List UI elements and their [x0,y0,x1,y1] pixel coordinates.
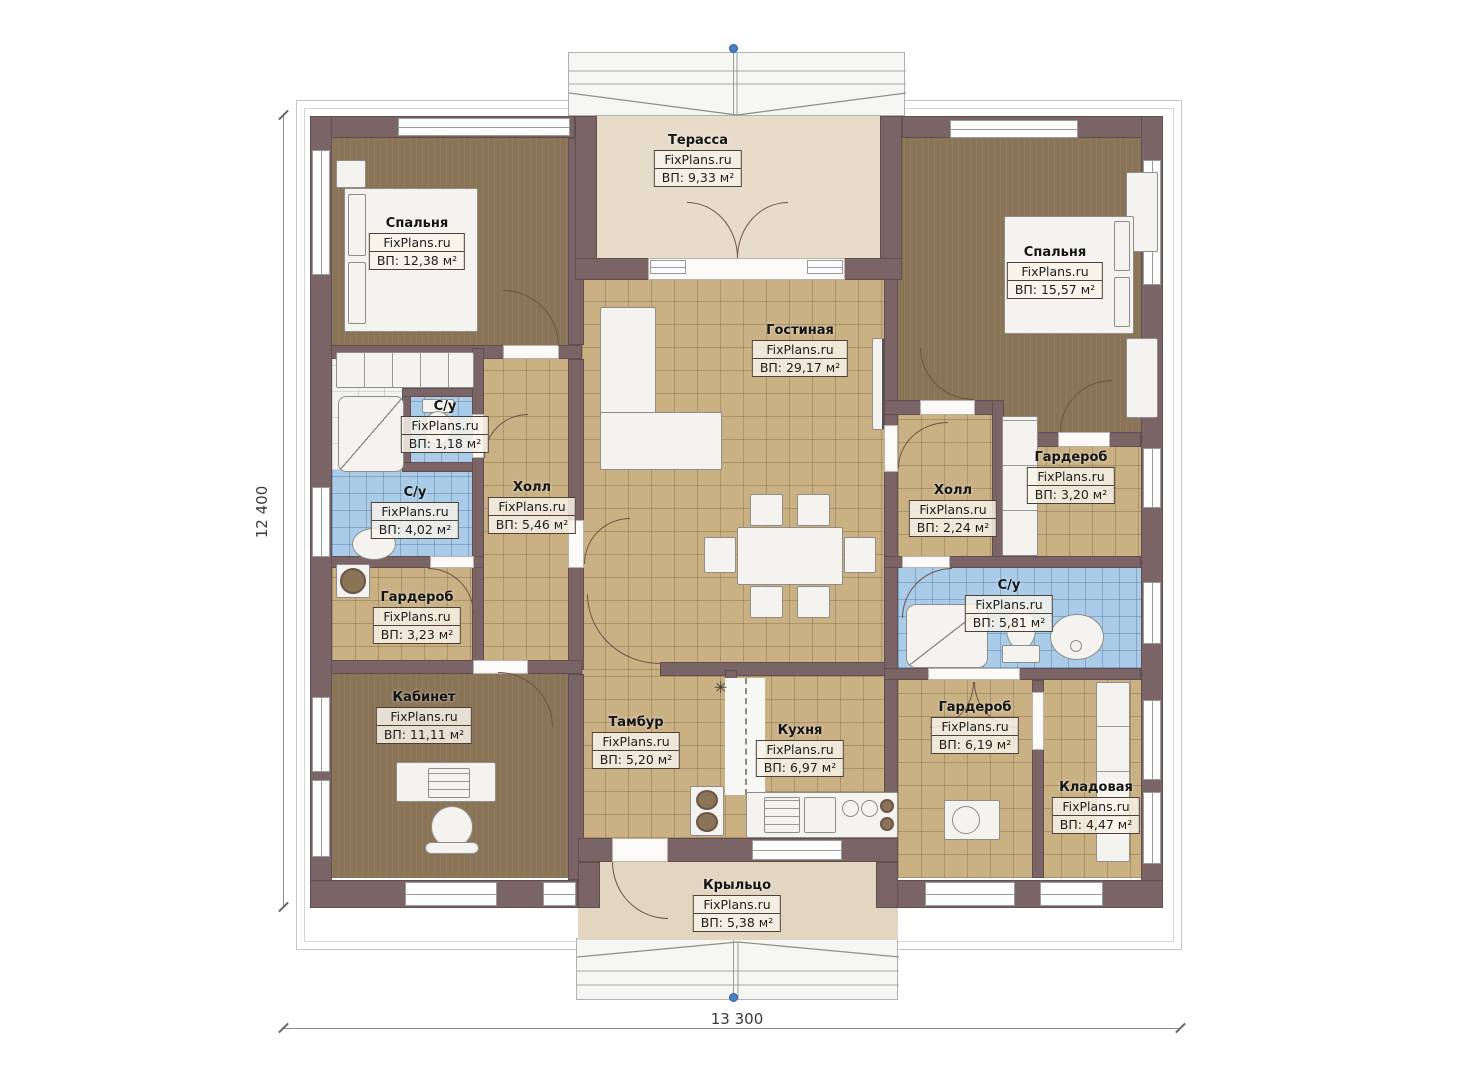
window-pantry-side-1 [1143,700,1161,780]
pantry-door-opening [1032,692,1044,750]
sink-right-drain [1070,640,1082,652]
dining-table [737,527,843,585]
room-name: Крыльцо [693,878,781,893]
room-name: Тамбур [592,715,680,730]
oven-knob-2 [696,812,718,832]
porch-roof [576,938,898,1000]
room-name: Кабинет [376,690,472,705]
room-info-box: FixPlans.ru ВП: 11,11 м² [376,707,472,744]
watermark-text: FixPlans.ru [966,596,1052,613]
window-pantry-side-2 [1143,792,1161,864]
pillow-right-2 [1114,277,1130,327]
wardrobe-right-door-opening [1058,432,1110,447]
room-name: Терасса [654,133,742,148]
terrace-roof [568,52,905,116]
room-info-box: FixPlans.ru ВП: 12,38 м² [369,233,465,270]
label-office: Кабинет FixPlans.ru ВП: 11,11 м² [376,690,472,744]
room-info-box: FixPlans.ru ВП: 6,19 м² [931,717,1019,754]
room-name: Спальня [1007,245,1103,260]
dimension-height-label: 12 400 [253,486,271,539]
window-wc-left-side [312,487,330,557]
room-name: Холл [488,480,576,495]
toilet-right-tank [1002,645,1040,663]
dimension-line-bottom [283,1028,1180,1029]
window-bedroom-left-top [398,118,570,136]
tv-panel [872,338,884,430]
room-area: ВП: 2,24 м² [910,518,996,536]
window-wardrobe-right-side [1143,448,1161,508]
terrace-door-panel-left [650,260,686,274]
watermark-text: FixPlans.ru [1008,263,1102,280]
chair-top-2 [797,494,830,526]
room-name: Гардероб [931,700,1019,715]
asterisk-symbol: ✳ [714,678,727,697]
room-area: ВП: 12,38 м² [370,251,464,269]
watermark-text: FixPlans.ru [1053,798,1139,815]
label-wc-left: С/у FixPlans.ru ВП: 4,02 м² [371,485,459,539]
room-info-box: FixPlans.ru ВП: 1,18 м² [401,416,489,453]
wall-living-kitchen [660,662,898,676]
stove-burner-2 [880,817,894,831]
room-name: С/у [371,485,459,500]
room-name: Кухня [756,723,844,738]
sofa-seat [600,412,722,470]
room-info-box: FixPlans.ru ВП: 9,33 м² [654,150,742,187]
label-bedroom-left: Спальня FixPlans.ru ВП: 12,38 м² [369,216,465,270]
label-pantry: Кладовая FixPlans.ru ВП: 4,47 м² [1052,780,1140,834]
watermark-text: FixPlans.ru [655,151,741,168]
window-office-bottom [405,882,497,906]
kitchen-dashed-line [745,678,747,795]
wall-office-top [310,660,582,674]
room-name: Холл [909,483,997,498]
dimension-line-left [283,116,284,908]
room-area: ВП: 3,23 м² [374,625,460,643]
label-wardrobe-left: Гардероб FixPlans.ru ВП: 3,23 м² [373,590,461,644]
handle-dot-top[interactable] [729,44,738,53]
room-name: Гардероб [373,590,461,605]
ridge-guide-top [733,48,734,116]
watermark-text: FixPlans.ru [374,608,460,625]
label-porch: Крыльцо FixPlans.ru ВП: 5,38 м² [693,878,781,932]
watermark-text: FixPlans.ru [694,896,780,913]
nightstand-left [336,160,366,188]
chair-top-1 [750,494,783,526]
washer-left-door [340,568,366,594]
label-wardrobe-bottom: Гардероб FixPlans.ru ВП: 6,19 м² [931,700,1019,754]
room-info-box: FixPlans.ru ВП: 29,17 м² [752,340,848,377]
room-area: ВП: 5,81 м² [966,613,1052,631]
window-bedroom-left-side [312,150,330,275]
label-hall-left: Холл FixPlans.ru ВП: 5,46 м² [488,480,576,534]
chair-left [704,537,736,573]
room-info-box: FixPlans.ru ВП: 3,23 м² [373,607,461,644]
room-area: ВП: 29,17 м² [753,358,847,376]
room-name: Гостиная [752,323,848,338]
wall-porch-stub-left [578,862,600,908]
living-hall-right-opening [884,425,898,472]
closet-bedroom-right-bottom [1126,338,1158,418]
sink-bowl-1 [842,800,859,817]
chair-bottom-2 [797,586,830,618]
room-info-box: FixPlans.ru ВП: 5,38 м² [693,895,781,932]
room-info-box: FixPlans.ru ВП: 4,02 м² [371,502,459,539]
pillow-left-1 [348,194,366,256]
room-area: ВП: 15,57 м² [1008,280,1102,298]
watermark-text: FixPlans.ru [757,741,843,758]
closet-bedroom-left [336,352,474,388]
label-hall-right: Холл FixPlans.ru ВП: 2,24 м² [909,483,997,537]
label-wardrobe-right: Гардероб FixPlans.ru ВП: 3,20 м² [1027,450,1115,504]
handle-dot-bottom[interactable] [729,993,738,1002]
room-name: Спальня [369,216,465,231]
room-name: С/у [965,578,1053,593]
wall-terrace-left [575,116,597,280]
label-terrace: Терасса FixPlans.ru ВП: 9,33 м² [654,133,742,187]
window-office-bottom-2 [543,882,576,906]
room-area: ВП: 5,46 м² [489,515,575,533]
watermark-text: FixPlans.ru [593,733,679,750]
stove-burner-1 [880,799,894,813]
desk-printer [428,768,470,798]
room-info-box: FixPlans.ru ВП: 5,81 м² [965,595,1053,632]
washer-bottom-door [952,806,980,834]
chair-bottom-1 [750,586,783,618]
terrace-door-panel-right [807,260,843,274]
label-tambour: Тамбур FixPlans.ru ВП: 5,20 м² [592,715,680,769]
room-name: Кладовая [1052,780,1140,795]
room-area: ВП: 11,11 м² [377,725,471,743]
pillow-left-2 [348,262,366,324]
room-area: ВП: 6,19 м² [932,735,1018,753]
chair-right [844,537,876,573]
wall-porch-stub-right [876,862,898,908]
room-area: ВП: 3,20 м² [1028,485,1114,503]
oven-knob-1 [696,790,718,810]
kitchen-cabinet [804,797,836,833]
floor-plan-canvas: ✳ Терасса [0,0,1474,1080]
wc-right-door-opening [902,556,950,568]
watermark-text: FixPlans.ru [370,234,464,251]
watermark-text: FixPlans.ru [932,718,1018,735]
dimension-width-label: 13 300 [711,1010,764,1028]
room-area: ВП: 4,02 м² [372,520,458,538]
window-bedroom-right-top [950,120,1078,138]
room-info-box: FixPlans.ru ВП: 5,20 м² [592,732,680,769]
room-area: ВП: 9,33 м² [655,168,741,186]
watermark-text: FixPlans.ru [489,498,575,515]
watermark-text: FixPlans.ru [402,417,488,434]
room-area: ВП: 5,38 м² [694,913,780,931]
terrace-roof-lines [569,53,906,117]
room-area: ВП: 6,97 м² [757,758,843,776]
window-pantry-bottom [1040,882,1103,906]
window-office-side-2 [312,780,330,857]
watermark-text: FixPlans.ru [372,503,458,520]
room-name: С/у [401,399,489,414]
pillow-right-1 [1114,221,1130,271]
room-area: ВП: 1,18 м² [402,434,488,452]
room-info-box: FixPlans.ru ВП: 6,97 м² [756,740,844,777]
room-area: ВП: 4,47 м² [1053,815,1139,833]
label-living: Гостиная FixPlans.ru ВП: 29,17 м² [752,323,848,377]
sink-right [1050,614,1104,660]
room-info-box: FixPlans.ru ВП: 3,20 м² [1027,467,1115,504]
bedroom-left-door-opening [503,345,559,359]
pantry-closet [1096,682,1130,862]
label-wc-right: С/у FixPlans.ru ВП: 5,81 м² [965,578,1053,632]
sink-bowl-2 [861,800,878,817]
entrance-door-opening [612,838,668,862]
watermark-text: FixPlans.ru [910,501,996,518]
room-info-box: FixPlans.ru ВП: 5,46 м² [488,497,576,534]
room-info-box: FixPlans.ru ВП: 4,47 м² [1052,797,1140,834]
bedroom-right-door-opening [920,400,975,415]
room-area: ВП: 5,20 м² [593,750,679,768]
fridge [764,797,800,833]
wardrobe-left-door-opening [430,556,474,568]
ridge-guide-bottom [733,940,734,996]
label-bedroom-right: Спальня FixPlans.ru ВП: 15,57 м² [1007,245,1103,299]
shower-tray [338,396,404,472]
window-kitchen-porch [752,840,842,860]
watermark-text: FixPlans.ru [377,708,471,725]
porch-roof-lines [577,939,899,1001]
room-name: Гардероб [1027,450,1115,465]
wardrobe-bottom-opening [928,668,1020,680]
window-wc-right-side [1143,582,1161,644]
room-info-box: FixPlans.ru ВП: 15,57 м² [1007,262,1103,299]
label-wc-small: С/у FixPlans.ru ВП: 1,18 м² [401,399,489,453]
wall-living-rightblock [884,258,898,880]
window-wardrobe-bottom [925,882,1015,906]
room-info-box: FixPlans.ru ВП: 2,24 м² [909,500,997,537]
label-kitchen: Кухня FixPlans.ru ВП: 6,97 м² [756,723,844,777]
office-chair-back [425,842,479,854]
watermark-text: FixPlans.ru [753,341,847,358]
wall-terrace-right [880,116,902,280]
watermark-text: FixPlans.ru [1028,468,1114,485]
window-office-side-1 [312,697,330,772]
wall-utility-right [472,348,484,670]
